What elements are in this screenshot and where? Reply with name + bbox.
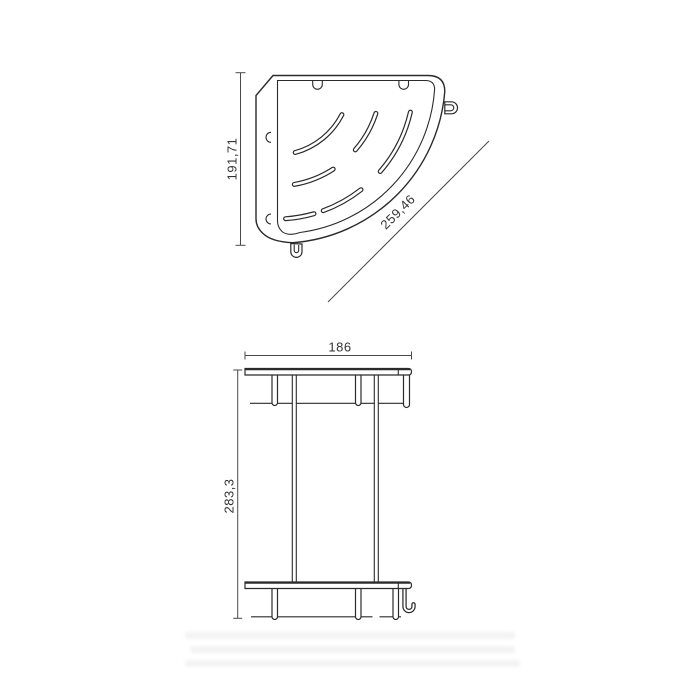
side-hook-tab xyxy=(445,102,458,114)
drawing-canvas: 191,71 259,46 xyxy=(0,0,700,700)
wall-plate-bump-lower xyxy=(266,214,271,224)
technical-drawing: 191,71 259,46 xyxy=(0,0,700,700)
drain-slot-holes xyxy=(286,112,411,219)
top-view: 191,71 259,46 xyxy=(225,73,490,302)
bottom-shelf-bar xyxy=(245,582,412,589)
bottom-post-left xyxy=(272,589,278,620)
bottom-post-middle xyxy=(356,589,362,620)
drain-slots xyxy=(286,112,411,219)
front-view: 186 283,3 xyxy=(222,340,414,620)
left-rail xyxy=(292,375,296,584)
right-rail xyxy=(374,375,378,584)
top-wall-bracket xyxy=(404,375,410,408)
dim-front-height: 283,3 xyxy=(222,370,243,618)
dim-label-top-height: 191,71 xyxy=(225,138,240,181)
dim-front-width: 186 xyxy=(245,340,412,360)
top-post-left xyxy=(272,375,278,406)
top-shelf-bar xyxy=(245,369,412,376)
towel-j-hook xyxy=(405,589,414,612)
dim-top-height: 191,71 xyxy=(225,73,246,246)
top-post-middle xyxy=(356,375,362,406)
drain-slot-outlines xyxy=(286,112,411,219)
dim-label-front-height: 283,3 xyxy=(222,478,237,513)
dim-label-front-width: 186 xyxy=(328,340,351,355)
top-edge-notch-left xyxy=(313,81,323,90)
wall-plate-bump-upper xyxy=(266,132,271,142)
dim-label-top-diagonal: 259,46 xyxy=(377,191,418,232)
top-edge-notch-right xyxy=(399,81,409,90)
top-view-inner-rim xyxy=(278,81,435,235)
bottom-loop xyxy=(291,244,302,258)
bottom-post-right xyxy=(393,589,399,620)
